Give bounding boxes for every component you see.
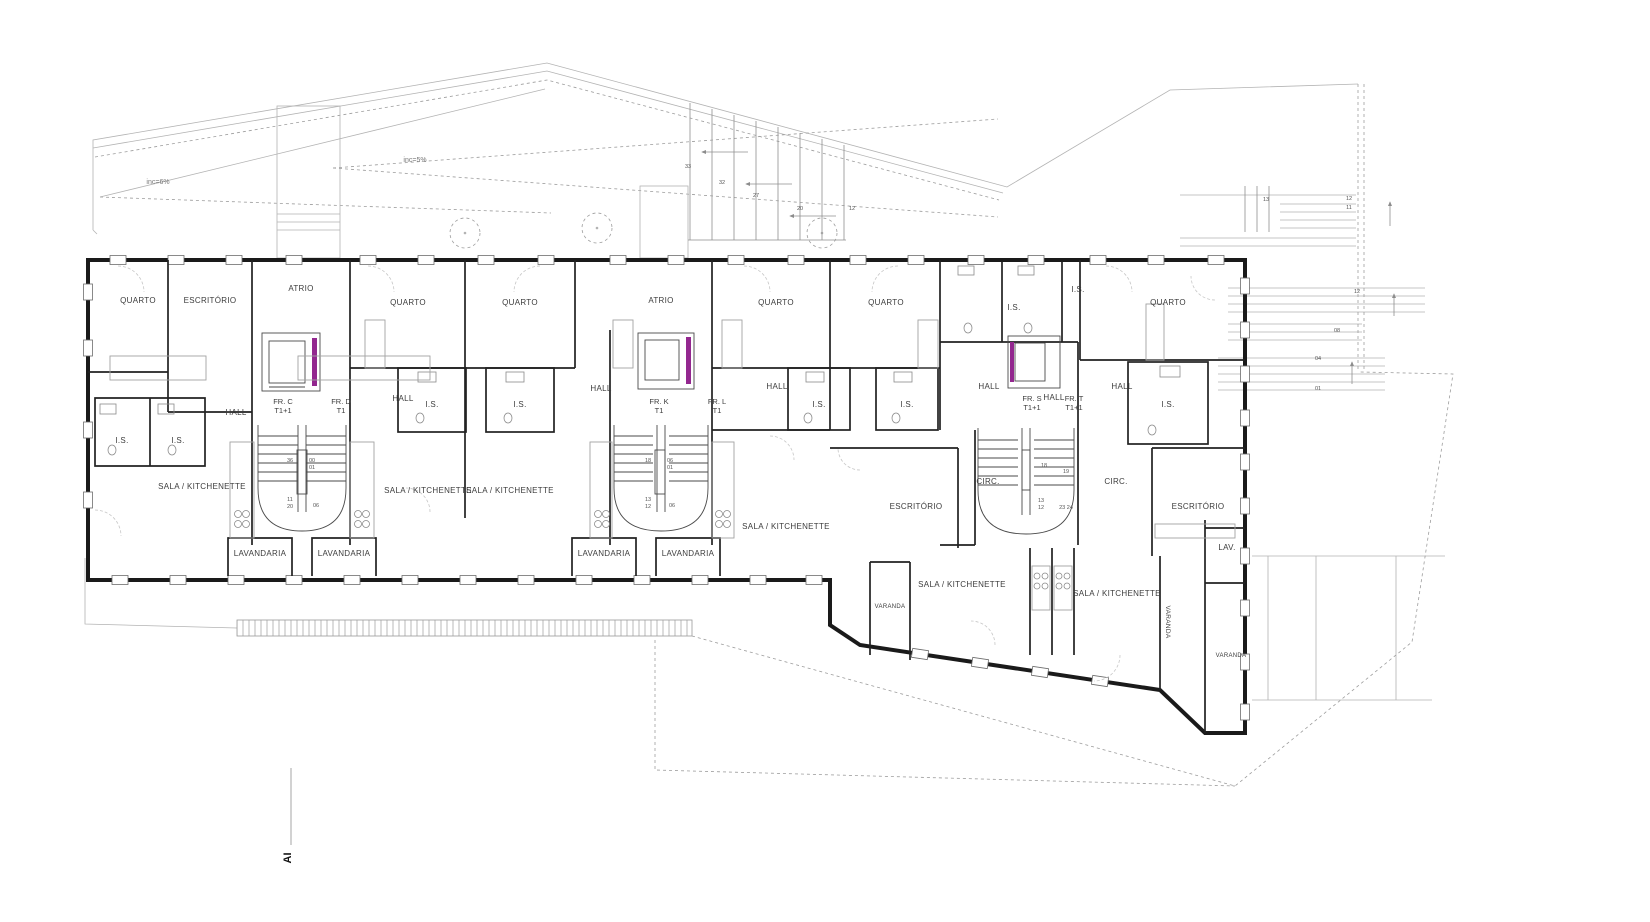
stair-number: 11: [287, 497, 293, 503]
stair-number: 32: [719, 180, 725, 186]
elevator-accent-bar: [686, 337, 691, 384]
stair-number: 06: [313, 503, 319, 509]
room-label: CIRC.: [976, 477, 999, 486]
unit-code: FR. K: [649, 397, 668, 406]
elevator-shaft: [262, 333, 320, 391]
room-label: HALL: [225, 408, 246, 417]
retaining-wall-hatch: [237, 620, 692, 636]
room-label: ESCRITÓRIO: [890, 502, 943, 511]
room-label: I.S.: [1071, 285, 1084, 294]
slope-label-right: inc=5%: [403, 157, 426, 164]
step-number: 12: [1354, 289, 1360, 295]
stair-number: 06: [667, 458, 673, 464]
stair-number: 20: [287, 504, 293, 510]
stair-number: 01: [309, 465, 315, 471]
room-label: LAVANDARIA: [578, 549, 631, 558]
stair-number: 18: [645, 458, 651, 464]
stair-number: 01: [667, 465, 673, 471]
room-label: I.S.: [1161, 400, 1174, 409]
roof-slope-lines: inc=6% inc=5%: [100, 89, 998, 217]
unit-type: T1: [655, 406, 664, 415]
floor-plan-drawing: inc=6% inc=5% 33 32 27 20 12 13 12 11: [0, 0, 1650, 922]
stair-number: 13: [645, 497, 651, 503]
elevator-shaft: [1008, 336, 1060, 388]
room-label: ESCRITÓRIO: [1172, 502, 1225, 511]
unit-type: T1+1: [274, 406, 291, 415]
room-label: HALL: [392, 394, 413, 403]
room-labels: QUARTO ESCRITÓRIO ATRIO QUARTO QUARTO AT…: [115, 284, 1246, 659]
room-label: VARANDA: [1164, 605, 1171, 638]
step-number: 12: [1346, 196, 1352, 202]
stair-number: 23 24: [1059, 505, 1073, 511]
stair-number: 12: [1038, 505, 1044, 511]
stair-number: 00: [309, 458, 315, 464]
section-marker: AI: [282, 768, 294, 864]
room-label: I.S.: [1007, 303, 1020, 312]
room-label: I.S.: [425, 400, 438, 409]
room-label: HALL: [766, 382, 787, 391]
room-label: LAVANDARIA: [234, 549, 287, 558]
room-label: QUARTO: [120, 296, 156, 305]
step-number: 11: [1346, 205, 1352, 211]
terrace-right: 13 12 11 12 08 04 01: [1180, 84, 1445, 700]
room-label: HALL: [1111, 382, 1132, 391]
room-label: HALL: [1043, 393, 1064, 402]
unit-type: T1: [337, 406, 346, 415]
room-label: HALL: [978, 382, 999, 391]
step-number: 01: [1315, 386, 1321, 392]
stair-number: 18: [1041, 463, 1047, 469]
room-label: ATRIO: [288, 284, 313, 293]
room-label: VARANDA: [1216, 653, 1247, 659]
unit-code: FR. D: [331, 397, 351, 406]
room-label: SALA / KITCHENETTE: [158, 482, 246, 491]
floor-plan-page: inc=6% inc=5% 33 32 27 20 12 13 12 11: [0, 0, 1650, 922]
unit-type: T1+1: [1023, 403, 1040, 412]
elevator-accent-bar: [1010, 342, 1014, 382]
room-label: QUARTO: [502, 298, 538, 307]
room-label: SALA / KITCHENETTE: [742, 522, 830, 531]
room-label: LAV.: [1218, 543, 1235, 552]
unit-code: FR. T: [1065, 394, 1084, 403]
step-number: 13: [1263, 197, 1269, 203]
room-label: ESCRITÓRIO: [184, 296, 237, 305]
elevator-shaft: [638, 333, 694, 389]
room-label: I.S.: [115, 436, 128, 445]
section-marker-label: AI: [282, 853, 294, 864]
unit-type: T1+1: [1065, 403, 1082, 412]
stair-number: 19: [1063, 469, 1069, 475]
stair-number: 20: [797, 206, 803, 212]
room-label: LAVANDARIA: [662, 549, 715, 558]
room-label: I.S.: [513, 400, 526, 409]
room-label: I.S.: [812, 400, 825, 409]
room-label: HALL: [590, 384, 611, 393]
unit-code: FR. C: [273, 397, 293, 406]
exterior-stair-top: 33 32 27 20 12: [685, 103, 855, 240]
room-label: I.S.: [171, 436, 184, 445]
roof-shafts: [277, 106, 837, 258]
room-label: QUARTO: [868, 298, 904, 307]
room-label: QUARTO: [1150, 298, 1186, 307]
stair-number: 12: [849, 206, 855, 212]
room-label: SALA / KITCHENETTE: [466, 486, 554, 495]
unit-code: FR. S: [1022, 394, 1041, 403]
room-label: ATRIO: [648, 296, 673, 305]
room-label: SALA / KITCHENETTE: [1073, 589, 1161, 598]
elevator-accent-bar: [312, 338, 317, 386]
stair-cores: 36 00 01 11 20 06 18 06 01 13 12 06 18 1…: [258, 425, 1074, 534]
room-label: CIRC.: [1104, 477, 1127, 486]
room-label: SALA / KITCHENETTE: [918, 580, 1006, 589]
room-label: SALA / KITCHENETTE: [384, 486, 472, 495]
room-label: I.S.: [900, 400, 913, 409]
step-number: 04: [1315, 356, 1321, 362]
stair-number: 12: [645, 504, 651, 510]
stair-number: 33: [685, 164, 691, 170]
slope-label-left: inc=6%: [146, 179, 169, 186]
room-label: QUARTO: [390, 298, 426, 307]
room-label: LAVANDARIA: [318, 549, 371, 558]
unit-code: FR. L: [708, 397, 726, 406]
stair-number: 27: [753, 193, 759, 199]
roof-outline: [93, 63, 1358, 234]
stair-number: 36: [287, 458, 293, 464]
stair-number: 06: [669, 503, 675, 509]
unit-type: T1: [713, 406, 722, 415]
room-label: VARANDA: [875, 604, 906, 610]
stair-number: 13: [1038, 498, 1044, 504]
step-number: 08: [1334, 328, 1340, 334]
room-label: QUARTO: [758, 298, 794, 307]
interior-walls: [88, 260, 1245, 733]
